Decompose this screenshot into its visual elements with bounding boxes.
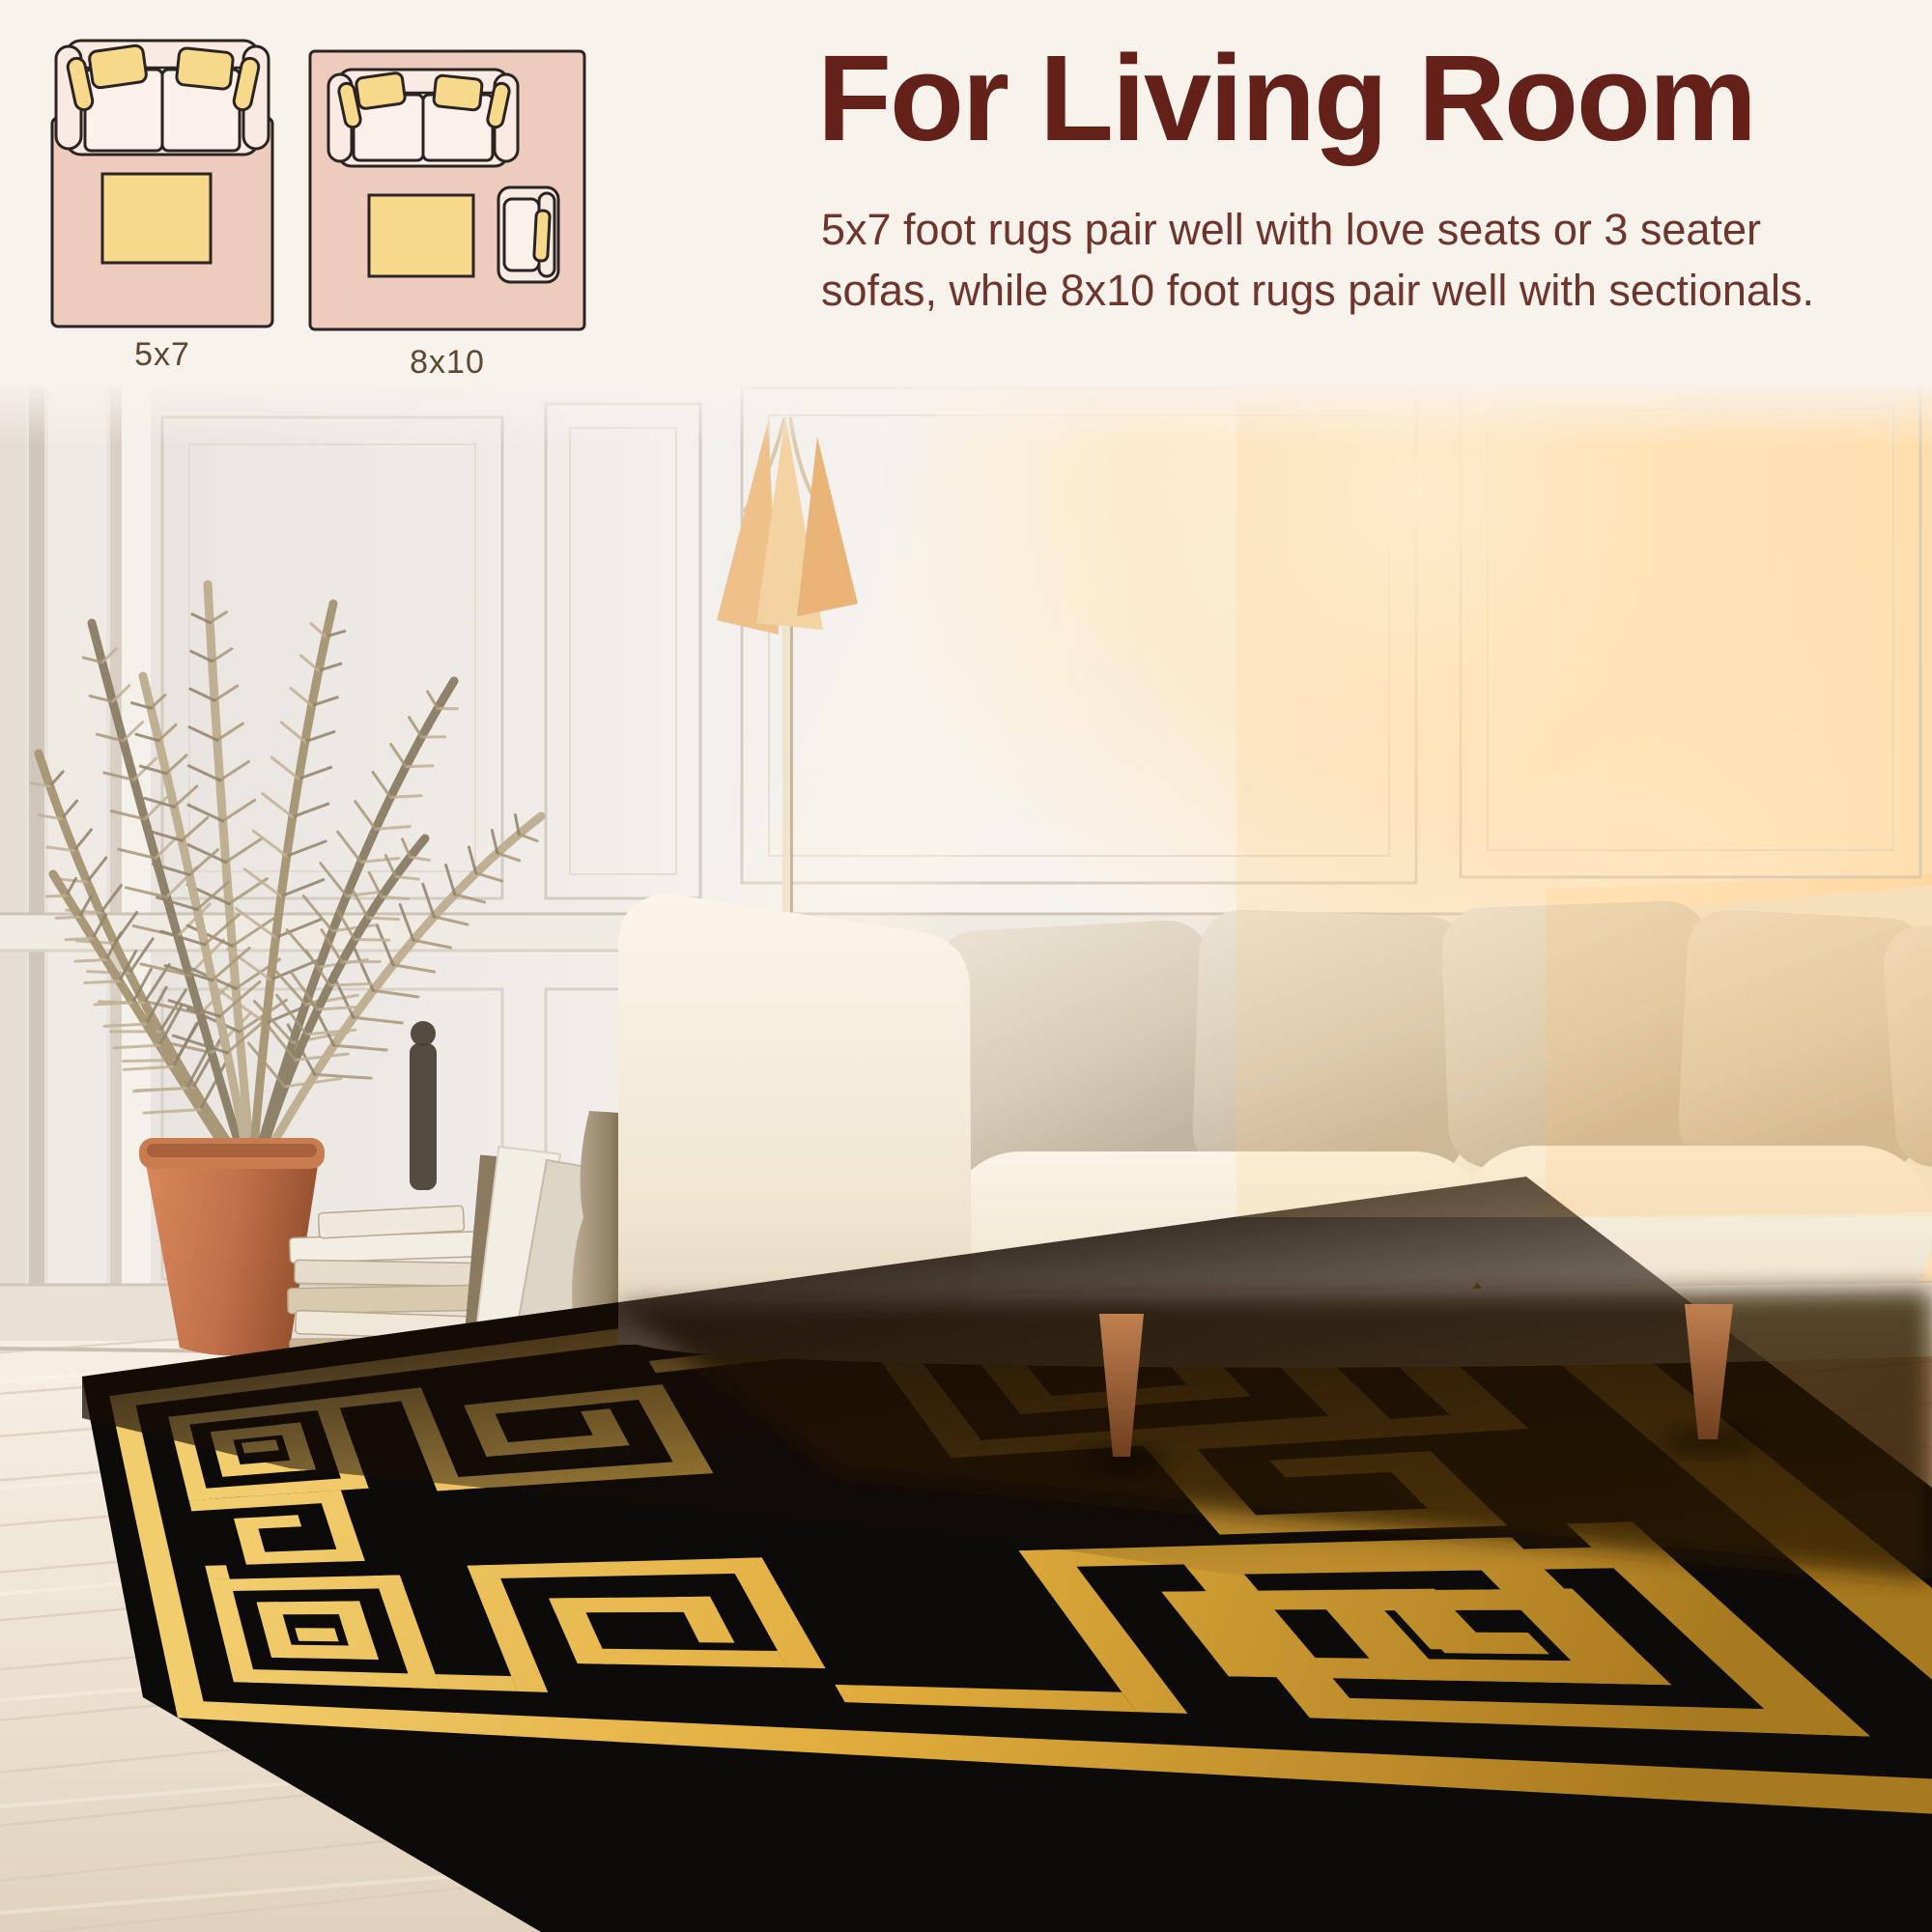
description-line-2: sofas, while 8x10 foot rugs pair well wi… <box>821 266 1814 315</box>
coffee-table-icon <box>369 195 473 276</box>
pillow-icon <box>355 72 406 109</box>
rug-size-diagram-8x10 <box>307 48 587 338</box>
rug-product-infographic: 5x7 8x10 <box>0 0 1932 1932</box>
pillow-icon <box>89 44 148 88</box>
pillow-icon <box>176 47 234 90</box>
diagram-label-8x10: 8x10 <box>331 344 563 382</box>
warm-light-wash <box>1236 367 1932 1217</box>
armchair-top-view-icon <box>498 187 558 282</box>
sofa-top-view-icon <box>328 70 518 166</box>
panel-photo-blend <box>0 379 1932 446</box>
rug-size-diagram-5x7 <box>46 33 278 334</box>
coffee-table-icon <box>102 174 211 263</box>
page-title: For Living Room <box>817 35 1918 162</box>
bronze-statue <box>410 1043 437 1190</box>
description-line-1: 5x7 foot rugs pair well with love seats … <box>821 205 1761 254</box>
sofa-top-view-icon <box>56 41 269 155</box>
pillow-icon <box>433 75 482 111</box>
pillow-icon <box>534 211 551 262</box>
diagram-label-5x7: 5x7 <box>46 336 278 374</box>
description-text: 5x7 foot rugs pair well with love seats … <box>821 199 1913 321</box>
